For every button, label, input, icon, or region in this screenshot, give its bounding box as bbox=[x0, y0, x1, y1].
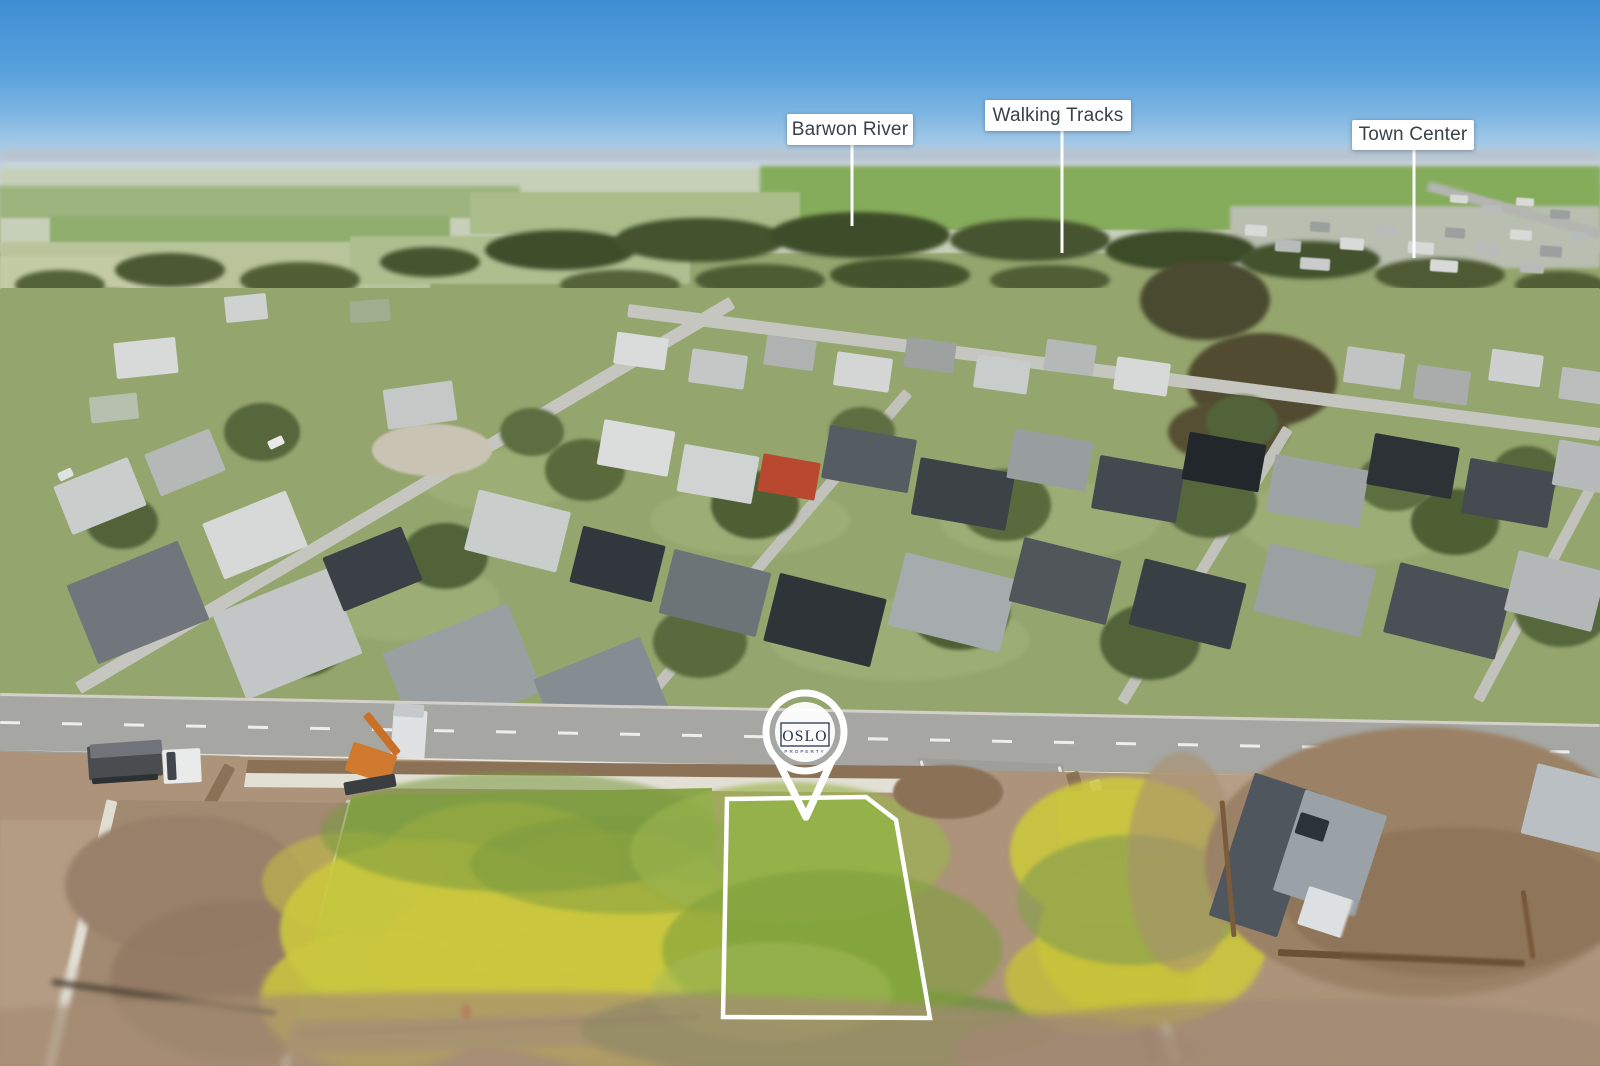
barwon-river-label: Barwon River bbox=[787, 114, 913, 145]
town-center-label-text: Town Center bbox=[1359, 124, 1468, 146]
brand-logo-text: OSLO bbox=[782, 728, 827, 745]
property-boundary-outline bbox=[723, 797, 930, 1018]
brand-tagline-text: PROPERTY bbox=[784, 749, 825, 754]
aerial-property-photo: OSLOPROPERTY Barwon RiverWalking TracksT… bbox=[0, 0, 1600, 1066]
barwon-river-label-text: Barwon River bbox=[792, 119, 908, 141]
walking-tracks-label: Walking Tracks bbox=[985, 100, 1131, 131]
walking-tracks-label-text: Walking Tracks bbox=[993, 105, 1124, 127]
annotation-overlay: OSLOPROPERTY bbox=[0, 0, 1600, 1066]
town-center-label: Town Center bbox=[1352, 120, 1474, 150]
